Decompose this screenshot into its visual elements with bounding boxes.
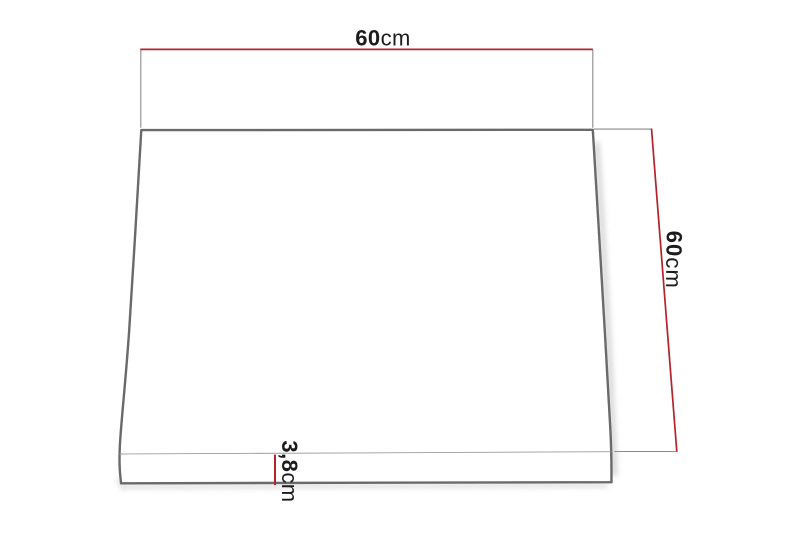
- svg-text:60cm: 60cm: [355, 26, 411, 51]
- svg-text:3,8cm: 3,8cm: [277, 440, 302, 502]
- svg-text:60cm: 60cm: [661, 231, 687, 290]
